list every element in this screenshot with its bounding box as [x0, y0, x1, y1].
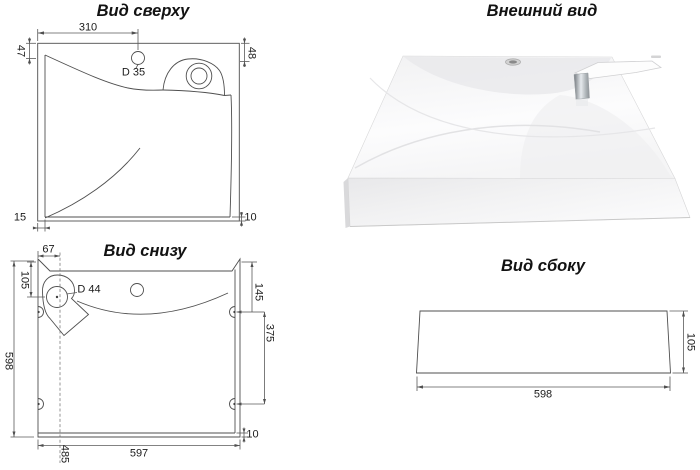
side-view-title: Вид сбоку: [501, 258, 585, 275]
drain-boss-bottom-line: [163, 90, 225, 96]
drain-outer-circle: [186, 63, 212, 89]
dim-label-d35: D 35: [122, 67, 145, 78]
dim-label-598-bottom-view: 598: [3, 352, 14, 370]
dim-label-47: 47: [14, 45, 25, 57]
dim-label-375: 375: [263, 324, 274, 342]
chrome-drain: [574, 73, 590, 100]
sink-outline-side-view: [417, 311, 671, 373]
dim-label-597: 597: [130, 448, 148, 459]
dim-label-48: 48: [246, 46, 257, 58]
technical-drawing-sheet: Вид сверху Внешний вид Вид снизу Вид сбо…: [0, 0, 700, 470]
faucet-hole-circle: [132, 52, 145, 65]
dim-label-105-bottom-view: 105: [18, 271, 29, 289]
dim-label-310: 310: [79, 22, 97, 33]
brand-logo-mark: [651, 56, 661, 59]
external-view-render: [344, 56, 691, 229]
basin-edge-curve: [77, 293, 228, 314]
dim-label-485: 485: [58, 445, 69, 463]
side-view-drawing: [417, 311, 689, 391]
dim-label-67: 67: [42, 244, 54, 255]
top-view-drawing: [26, 29, 250, 232]
dim-label-10-top-view: 10: [244, 213, 256, 224]
dim-label-10-bottom-view: 10: [246, 429, 258, 440]
bottom-view-drawing: [11, 251, 267, 463]
drawing-canvas: [0, 0, 700, 470]
dim-label-598-side-view: 598: [534, 389, 552, 400]
chrome-drain-reflection: [576, 99, 588, 106]
dim-label-d44: D 44: [77, 285, 100, 296]
basin-back-curve: [45, 55, 163, 90]
dim-label-15: 15: [14, 212, 26, 223]
drain-center-dot: [56, 296, 58, 298]
faucet-hole-bottom-circle: [131, 284, 144, 297]
top-view-title: Вид сверху: [97, 3, 190, 20]
external-view-title: Внешний вид: [487, 3, 598, 20]
drain-inner-circle: [191, 68, 207, 84]
d44-leader-line: [67, 293, 78, 295]
dim-label-105-side-view: 105: [684, 333, 695, 351]
dim-label-145: 145: [252, 283, 263, 301]
basin-inner-right-edge: [230, 95, 232, 217]
basin-slope-curve: [45, 148, 140, 218]
faucet-hole-render-inner: [509, 60, 517, 63]
sink-outline-bottom-view: [38, 259, 240, 437]
bottom-view-title: Вид снизу: [104, 243, 187, 260]
